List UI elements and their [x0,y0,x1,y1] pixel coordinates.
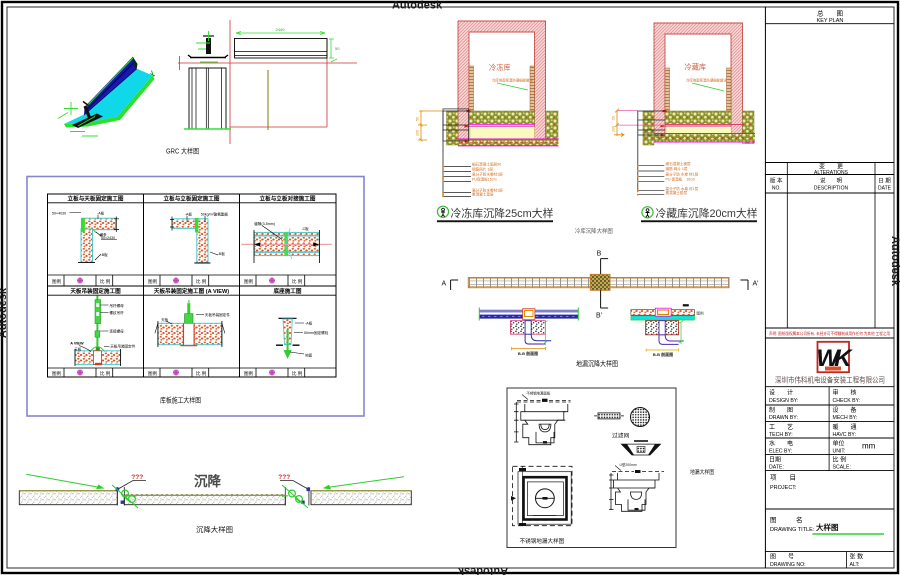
svg-text:TECH BY:: TECH BY: [769,432,793,438]
svg-text:U型200mm: U型200mm [620,462,637,467]
svg-text:吊杆螺母: 吊杆螺母 [109,303,124,308]
svg-text:冷库地面保温防潮细部做法: 冷库地面保温防潮细部做法 [492,78,533,83]
svg-text:张 数: 张 数 [850,553,864,561]
svg-text:A: A [442,281,447,288]
svg-text:???: ??? [278,474,290,481]
svg-text:地面: 地面 [305,352,313,357]
svg-text:暖 通: 暖 通 [833,423,857,431]
svg-text:过滤网: 过滤网 [612,432,630,440]
svg-text:底座施工图: 底座施工图 [274,287,302,295]
svg-text:版 本: 版 本 [770,177,783,185]
svg-text:ELEC BY:: ELEC BY: [769,449,792,455]
svg-text:天板吊装固定件: 天板吊装固定件 [205,312,231,317]
svg-text:立板与立板固定施工图: 立板与立板固定施工图 [164,195,220,203]
svg-text:50: 50 [416,117,420,121]
svg-text:天板: 天板 [74,346,82,351]
svg-text:图例: 图例 [148,278,157,285]
svg-text:冷冻库沉降25cm大样: 冷冻库沉降25cm大样 [451,206,554,220]
svg-text:mm: mm [862,442,876,451]
svg-text:单位: 单位 [833,440,845,448]
svg-text:连接螺母: 连接螺母 [109,328,124,333]
svg-text:细石混凝土面层50: 细石混凝土面层50 [472,162,501,167]
svg-text:CHECK BY:: CHECK BY: [833,398,861,404]
svg-text:总 图: 总 图 [817,9,843,18]
svg-text:深圳市伟科机电设备安装工程有限公司: 深圳市伟科机电设备安装工程有限公司 [775,376,885,385]
svg-text:DATE:: DATE: [769,465,784,471]
svg-text:A': A' [753,281,759,288]
svg-text:HAVC BY:: HAVC BY: [833,432,857,438]
svg-text:SCALE:: SCALE: [833,465,851,471]
svg-text:DATE: DATE [878,186,892,192]
svg-text:50×4030: 50×4030 [52,211,66,215]
svg-text:冷库沉降大样图: 冷库沉降大样图 [575,227,613,235]
svg-text:A VIEW: A VIEW [70,341,84,345]
svg-text:冷库地面保温防潮细部做法: 冷库地面保温防潮细部做法 [686,78,727,83]
svg-text:细石混凝土面层: 细石混凝土面层 [666,161,692,166]
svg-text:立板与立板对接施工图: 立板与立板对接施工图 [260,195,316,203]
svg-text:钢筋 网片 1层: 钢筋 网片 1层 [666,166,688,171]
svg-text:DESIGN BY:: DESIGN BY: [769,398,798,404]
svg-text:50kg/m³聚氨酯板: 50kg/m³聚氨酯板 [201,212,229,217]
svg-text:地漏沉降大样图: 地漏沉降大样图 [576,359,618,368]
svg-text:比 例: 比 例 [196,370,207,377]
svg-text:日 期: 日 期 [878,178,891,185]
svg-text:UNIT:: UNIT: [833,449,846,455]
svg-text:冷藏库: 冷藏库 [685,63,707,72]
svg-text:ALT:: ALT: [850,562,860,568]
svg-text:B: B [597,251,602,258]
svg-text:审 核: 审 核 [833,389,857,397]
svg-text:声明: 图纸版权属本公司所有, 未经许可不得翻制或用作任何: 声明: 图纸版权属本公司所有, 未经许可不得翻制或用作任何 为其他 工程之用 [769,330,890,337]
svg-text:-A板: -A板 [97,210,105,215]
svg-text:沉降: 沉降 [194,473,221,489]
svg-text:-C板: -C板 [301,226,309,231]
svg-text:螺纹吊杆: 螺纹吊杆 [109,310,124,315]
svg-text:Autodesk: Autodesk [0,287,9,338]
svg-text:天板吊装固定施工图 (A VIEW): 天板吊装固定施工图 (A VIEW) [154,287,229,295]
svg-text:比 例: 比 例 [100,278,111,285]
svg-text:PU 保温板 10cm: PU 保温板 10cm [666,177,696,182]
svg-text:2440: 2440 [276,27,286,32]
svg-text:DRAWING TITLE:: DRAWING TITLE: [770,527,815,533]
svg-text:B-B 剖面图: B-B 剖面图 [518,350,538,356]
svg-text:200: 200 [612,126,616,132]
svg-text:图例: 图例 [148,370,157,377]
svg-text:不锈钢地漏大样图: 不锈钢地漏大样图 [520,537,565,545]
svg-text:不锈钢地漏面板: 不锈钢地漏面板 [527,391,551,396]
svg-text:比 例: 比 例 [833,456,847,464]
svg-text:缝隙(3-5mm): 缝隙(3-5mm) [254,221,275,226]
svg-text:钢筋网片 1层: 钢筋网片 1层 [472,167,493,172]
svg-text:B-B 剖面图: B-B 剖面图 [653,351,673,357]
svg-text:NO.: NO. [772,186,781,192]
svg-text:DESCRIPTION: DESCRIPTION [814,186,849,192]
svg-text:B': B' [596,313,602,320]
svg-text:DRAWN BY:: DRAWN BY: [769,415,798,421]
svg-text:素混凝土垫层: 素混凝土垫层 [666,190,688,195]
svg-text:库板施工大样图: 库板施工大样图 [160,396,201,405]
svg-text:DRAWING NO:: DRAWING NO: [770,562,806,568]
svg-text:水 电: 水 电 [769,440,793,448]
svg-text:PU保温板15cm: PU保温板15cm [472,177,497,182]
svg-text:图例: 图例 [52,370,61,377]
svg-text:图 号: 图 号 [770,554,794,561]
svg-text:天板吊装固定件: 天板吊装固定件 [110,344,136,349]
svg-text:冷藏库沉降20cm大样: 冷藏库沉降20cm大样 [656,206,758,220]
svg-text:图例: 图例 [697,311,705,316]
svg-text:???: ??? [131,474,143,481]
svg-text:-A板: -A板 [185,212,193,217]
svg-text:GRC 大样图: GRC 大样图 [166,147,199,156]
svg-text:天板: 天板 [161,317,169,322]
svg-text:PROJECT:: PROJECT: [770,485,797,491]
svg-text:KEY PLAN: KEY PLAN [817,18,844,24]
svg-text:50×2430: 50×2430 [101,236,115,240]
svg-text:50mm固定螺栓: 50mm固定螺栓 [304,330,329,335]
svg-text:沉降大样图: 沉降大样图 [196,525,233,534]
svg-text:图例: 图例 [52,278,61,285]
svg-text:-A板: -A板 [305,320,313,325]
svg-text:Autodesk: Autodesk [457,565,508,575]
svg-text:50: 50 [612,116,616,120]
svg-text:比 例: 比 例 [100,370,111,377]
svg-text:ALTERATIONS: ALTERATIONS [814,170,849,176]
svg-text:200: 200 [416,130,420,136]
svg-text:素混凝土垫层: 素混凝土垫层 [472,192,494,197]
svg-text:比 例: 比 例 [292,370,303,377]
svg-text:立板与天板固定施工图: 立板与天板固定施工图 [68,195,124,203]
svg-text:日期: 日期 [769,456,781,464]
svg-text:工 艺: 工 艺 [769,423,793,431]
svg-text:大样图: 大样图 [816,522,839,532]
svg-text:比 例: 比 例 [196,278,207,285]
svg-text:Autodesk: Autodesk [392,0,443,12]
svg-text:设 备: 设 备 [833,406,857,414]
svg-text:比 例: 比 例 [292,278,303,285]
svg-text:冷冻库: 冷冻库 [489,63,511,72]
svg-text:Autodesk: Autodesk [889,236,900,287]
svg-text:项 目: 项 目 [770,474,796,482]
svg-text:地漏大样图: 地漏大样图 [690,468,714,476]
svg-text:图 名: 图 名 [770,515,803,524]
svg-text:天板吊装固定施工图: 天板吊装固定施工图 [70,287,121,295]
svg-text:图例: 图例 [244,278,253,285]
svg-text:-B板: -B板 [101,252,109,257]
svg-text:图例: 图例 [244,370,253,377]
svg-text:高分子防水卷材1层: 高分子防水卷材1层 [472,172,503,177]
svg-text:说 明: 说 明 [820,177,843,185]
svg-text:设 计: 设 计 [769,389,793,397]
svg-text:50: 50 [335,46,340,51]
svg-text:高分子防 水卷 材1层: 高分子防 水卷 材1层 [666,172,699,177]
svg-text:制 图: 制 图 [769,406,793,414]
svg-text:-B板: -B板 [218,251,226,256]
svg-text:MECH BY:: MECH BY: [833,415,858,421]
